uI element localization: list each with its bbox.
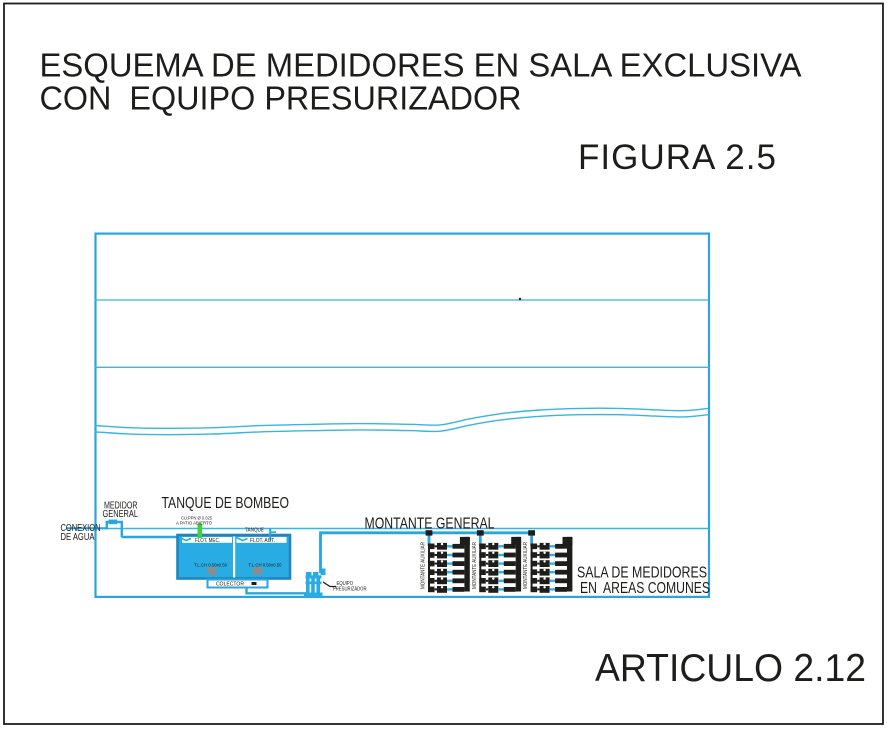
svg-text:DE AGUA: DE AGUA bbox=[61, 531, 95, 543]
svg-text:T.L.CH 0.50x0.50: T.L.CH 0.50x0.50 bbox=[249, 562, 282, 567]
svg-text:CON EQUIPO PRESURIZADOR: CON EQUIPO PRESURIZADOR bbox=[40, 79, 522, 116]
svg-text:GENERAL: GENERAL bbox=[103, 509, 139, 520]
svg-text:MONTANTE AUXILIAR: MONTANTE AUXILIAR bbox=[523, 542, 529, 589]
svg-text:T.L.CH 0.50x0.50: T.L.CH 0.50x0.50 bbox=[194, 562, 227, 567]
svg-text:SALA DE MEDIDORES: SALA DE MEDIDORES bbox=[577, 565, 707, 582]
svg-text:FLOT. MEC.: FLOT. MEC. bbox=[195, 538, 220, 544]
svg-text:TANQUE: TANQUE bbox=[245, 528, 265, 534]
svg-text:A PATIO ABIERTO: A PATIO ABIERTO bbox=[176, 521, 212, 527]
svg-text:FIGURA 2.5: FIGURA 2.5 bbox=[578, 138, 776, 177]
svg-text:ESQUEMA DE MEDIDORES EN SALA E: ESQUEMA DE MEDIDORES EN SALA EXCLUSIVA bbox=[40, 47, 802, 84]
svg-text:FLOT. AUT.: FLOT. AUT. bbox=[250, 538, 275, 544]
svg-text:MONTANTE GENERAL: MONTANTE GENERAL bbox=[365, 516, 495, 533]
svg-text:MONTANTE AUXILIAR: MONTANTE AUXILIAR bbox=[472, 542, 478, 589]
svg-text:TANQUE DE BOMBEO: TANQUE DE BOMBEO bbox=[162, 495, 290, 512]
svg-text:MONTANTE AUXILIAR: MONTANTE AUXILIAR bbox=[421, 542, 427, 589]
svg-text:PRESURIZADOR: PRESURIZADOR bbox=[333, 587, 367, 593]
svg-text:COLECTOR: COLECTOR bbox=[216, 582, 244, 588]
svg-text:ARTICULO 2.12: ARTICULO 2.12 bbox=[595, 647, 866, 690]
svg-text:EN AREAS COMUNES: EN AREAS COMUNES bbox=[580, 580, 710, 597]
